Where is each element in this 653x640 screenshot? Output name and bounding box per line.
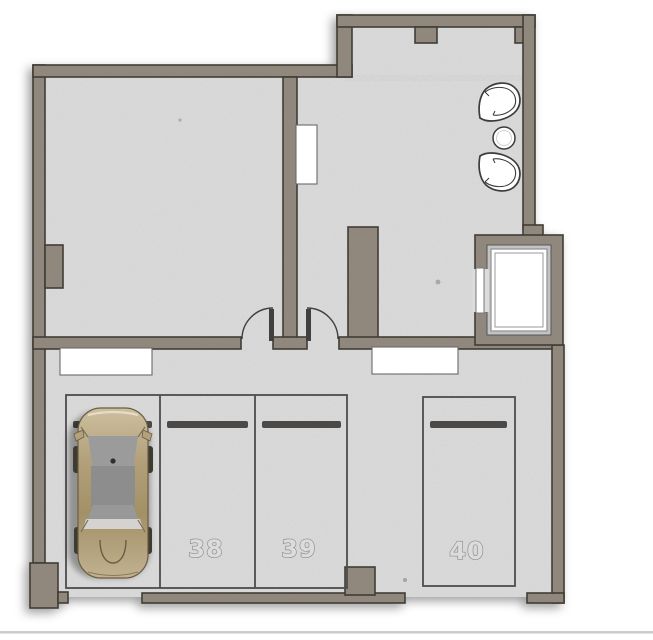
wall-top-upper-room: [337, 15, 535, 27]
wall-center-pillar: [348, 227, 378, 339]
floor-plan: 38 39 40: [30, 15, 564, 608]
stall-number-40: 40: [449, 537, 484, 565]
wall-right-upper: [523, 15, 535, 229]
wall-left-room-right: [283, 77, 297, 339]
elevator-car: [495, 253, 543, 327]
door-panel-left-room: [296, 125, 317, 184]
opening-garage-right: [372, 347, 458, 374]
elevator-icon: [472, 235, 563, 345]
car-windshield: [87, 505, 139, 521]
wheel-stop: [262, 421, 341, 428]
wall-garage-top-a: [33, 337, 241, 349]
car-cowl-highlight: [83, 519, 143, 529]
stall-number-39: 39: [281, 535, 316, 563]
wall-garage-top-b: [273, 337, 307, 349]
wheel-stop: [430, 421, 507, 428]
car-antenna: [110, 458, 115, 463]
car-icon: [68, 408, 153, 578]
opening-garage-left: [60, 348, 152, 375]
wall-top-notch: [415, 27, 437, 43]
wall-top-left-room: [33, 65, 352, 77]
floor-speck: [178, 118, 181, 121]
bottom-rule: [0, 631, 653, 634]
elevator-door-panel: [476, 268, 484, 313]
wall-right-lower: [552, 345, 564, 603]
wheel-stop: [167, 421, 248, 428]
door-leaf-right: [306, 309, 311, 341]
car-rear-glass: [88, 436, 138, 470]
floor-speck: [436, 280, 441, 285]
door-leaf-left: [269, 309, 274, 341]
wall-step: [58, 592, 68, 603]
floor-plan-screenshot: 38 39 40: [0, 0, 653, 640]
floor-plan-canvas: 38 39 40: [0, 0, 653, 640]
wall-left: [33, 65, 45, 563]
stall-number-38: 38: [188, 535, 223, 563]
wall-bottom-riser: [345, 567, 375, 595]
car-roof: [91, 466, 135, 507]
wall-bottom-right: [527, 593, 564, 603]
wall-bottom-left-corner: [30, 563, 58, 608]
floor-speck: [403, 578, 407, 582]
wall-pilaster-left: [45, 245, 63, 288]
